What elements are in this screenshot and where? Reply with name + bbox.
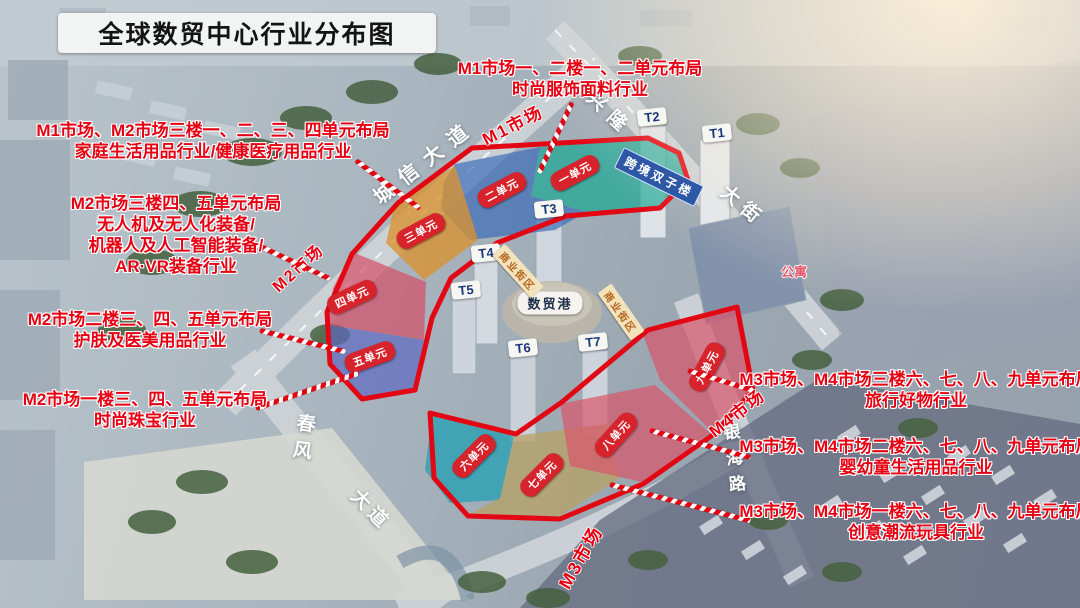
annotation-line: M2市场一楼三、四、五单元布局 (23, 389, 268, 410)
annotation-line: 家庭生活用品行业/健康医疗用品行业 (36, 141, 389, 162)
annotation-m1m2-floor3: M1市场、M2市场三楼一、二、三、四单元布局 家庭生活用品行业/健康医疗用品行业 (36, 120, 389, 162)
annotation-m3m4-floor1: M3市场、M4市场一楼六、七、八、九单元布局 创意潮流玩具行业 (739, 501, 1080, 543)
annotation-line: M3市场、M4市场一楼六、七、八、九单元布局 (739, 501, 1080, 522)
annotation-line: M2市场三楼四、五单元布局 (71, 193, 282, 214)
annotation-line: 旅行好物行业 (739, 390, 1080, 411)
annotation-line: 创意潮流玩具行业 (739, 522, 1080, 543)
building-badge-t7: T7 (578, 332, 609, 352)
annotation-line: M2市场二楼三、四、五单元布局 (28, 309, 273, 330)
annotation-line: M1市场、M2市场三楼一、二、三、四单元布局 (36, 120, 389, 141)
annotation-m2-floor2: M2市场二楼三、四、五单元布局 护肤及医美用品行业 (28, 309, 273, 351)
annotation-line: M1市场一、二楼一、二单元布局 (458, 58, 703, 79)
annotation-line: 机器人及人工智能装备/ (71, 235, 282, 256)
apartment-label: 公寓 (781, 262, 807, 281)
annotation-line: 护肤及医美用品行业 (28, 330, 273, 351)
annotation-line: 时尚服饰面料行业 (458, 79, 703, 100)
annotation-line: 婴幼童生活用品行业 (739, 457, 1080, 478)
annotation-line: M3市场、M4市场三楼六、七、八、九单元布局 (739, 369, 1080, 390)
annotation-line: 时尚珠宝行业 (23, 410, 268, 431)
annotation-m3m4-floor3: M3市场、M4市场三楼六、七、八、九单元布局 旅行好物行业 (739, 369, 1080, 411)
annotation-m2-floor1: M2市场一楼三、四、五单元布局 时尚珠宝行业 (23, 389, 268, 431)
annotation-m3m4-floor2: M3市场、M4市场二楼六、七、八、九单元布局 婴幼童生活用品行业 (739, 436, 1080, 478)
building-badge-t6: T6 (508, 338, 539, 358)
annotation-line: M3市场、M4市场二楼六、七、八、九单元布局 (739, 436, 1080, 457)
annotation-m1-floors12: M1市场一、二楼一、二单元布局 时尚服饰面料行业 (458, 58, 703, 100)
title-banner: 全球数贸中心行业分布图 (58, 13, 436, 53)
industry-distribution-map: 全球数贸中心行业分布图 M1市场一、二楼一、二单元布局 时尚服饰面料行业 M1市… (0, 0, 1080, 608)
page-title: 全球数贸中心行业分布图 (98, 15, 395, 51)
building-badge-t5: T5 (451, 280, 482, 300)
annotation-line: 无人机及无人化装备/ (71, 214, 282, 235)
building-badge-t1: T1 (702, 123, 733, 143)
annotation-line: AR·VR装备行业 (71, 256, 282, 277)
building-badge-t2: T2 (637, 107, 668, 127)
building-badge-t3: T3 (534, 199, 565, 219)
annotation-m2-floor3: M2市场三楼四、五单元布局 无人机及无人化装备/ 机器人及人工智能装备/ AR·… (71, 193, 282, 277)
